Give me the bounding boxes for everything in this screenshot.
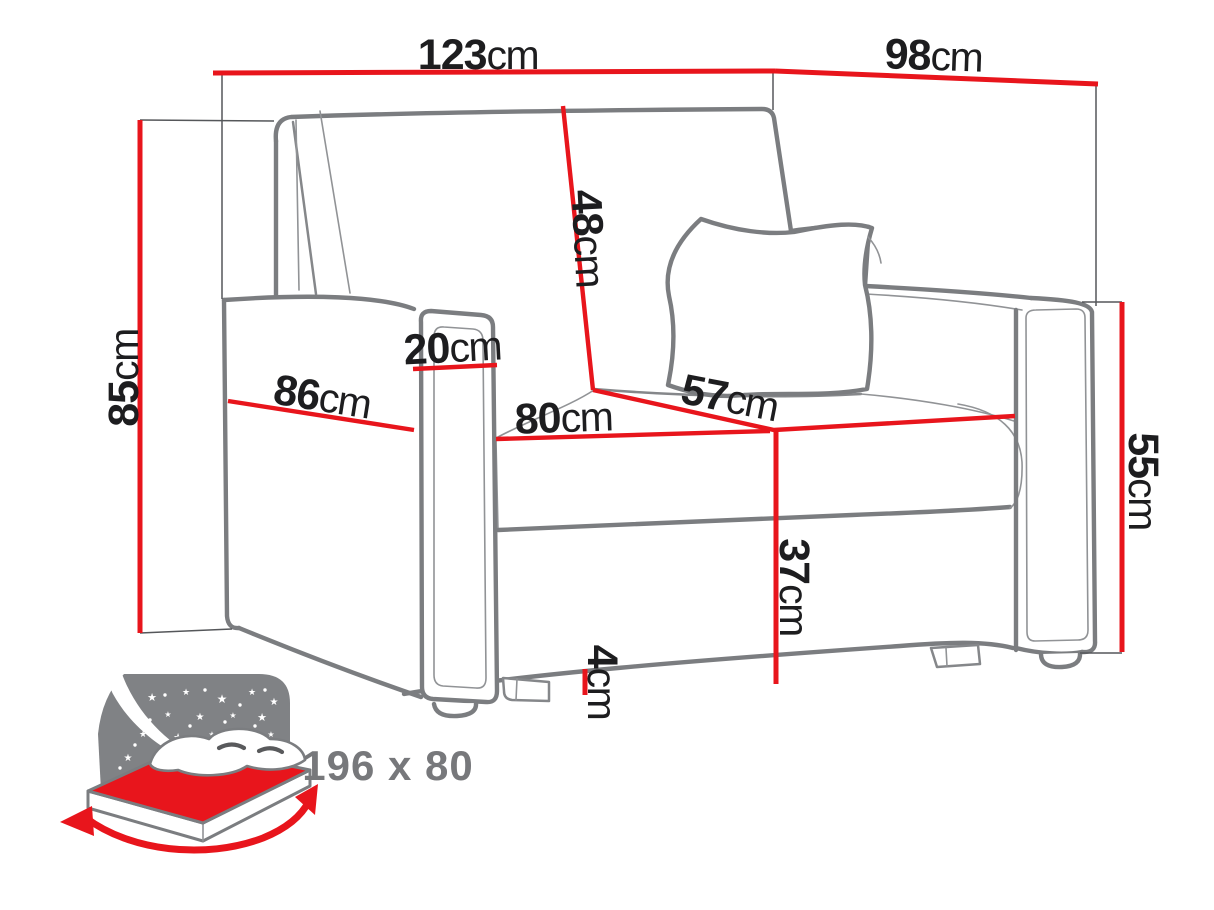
ext-total-height-top — [140, 120, 274, 121]
backrest-outline — [276, 109, 791, 231]
svg-text:★: ★ — [270, 697, 279, 708]
sleeping-area-icon: ★★ ★★ ★★ ★★ ★★ ★★ ★★ ★★ ★★ ★★ ★★ ★★ ★ — [60, 674, 474, 850]
fold-arrow-head-left — [60, 806, 94, 836]
dimension-label-seat-width: 80cm — [514, 392, 613, 443]
svg-text:★: ★ — [248, 688, 256, 698]
svg-text:★: ★ — [147, 691, 157, 704]
dimension-labels: 123cm 98cm 85cm 48cm 20cm 86cm 80cm 57cm… — [100, 30, 1167, 719]
dimension-label-side-depth: 86cm — [270, 366, 374, 429]
left-arm-outer-edge — [224, 300, 239, 628]
svg-text:★: ★ — [124, 753, 133, 764]
ext-total-height-bottom — [140, 629, 232, 633]
dimension-label-armrest-height: 55cm — [1119, 432, 1167, 530]
extension-lines — [140, 73, 1122, 653]
svg-text:★: ★ — [182, 688, 190, 698]
svg-text:★: ★ — [196, 712, 205, 723]
svg-text:★: ★ — [217, 692, 228, 706]
svg-text:★: ★ — [139, 730, 147, 740]
rear-leg-edge — [946, 648, 947, 666]
backrest-crease-3 — [320, 111, 350, 293]
sleeping-area-size-label: 196 x 80 — [302, 742, 474, 789]
svg-text:★: ★ — [257, 711, 267, 724]
dimension-label-armrest-width: 20cm — [402, 322, 502, 375]
diagram-canvas: 123cm 98cm 85cm 48cm 20cm 86cm 80cm 57cm… — [0, 0, 1214, 910]
svg-text:★: ★ — [164, 710, 171, 719]
dimension-label-backrest-height: 48cm — [561, 188, 614, 288]
rear-leg — [931, 645, 980, 667]
front-leg-edge — [516, 679, 517, 700]
right-arm-bottom — [1016, 648, 1082, 654]
right-arm-panel-seam — [1026, 309, 1088, 641]
left-arm-top-contour — [224, 297, 414, 309]
svg-text:★: ★ — [229, 711, 236, 720]
dimension-label-seat-height: 37cm — [770, 538, 818, 636]
sofa-backrest — [276, 109, 1031, 421]
dimension-label-total-width: 123cm — [418, 31, 538, 79]
sofa-dimension-diagram: 123cm 98cm 85cm 48cm 20cm 86cm 80cm 57cm… — [0, 0, 1214, 910]
seat-cushion-bottom-seam — [498, 507, 1010, 530]
sofa-right-armrest — [1016, 298, 1095, 667]
front-leg — [503, 678, 549, 701]
backrest-crease-2 — [296, 120, 299, 290]
left-arm-foot — [434, 703, 476, 716]
right-arm-foot — [1041, 653, 1080, 667]
dimension-label-total-depth: 98cm — [884, 30, 983, 81]
dimension-label-total-height: 85cm — [100, 329, 148, 427]
dimension-label-leg-height: 4cm — [578, 645, 626, 720]
